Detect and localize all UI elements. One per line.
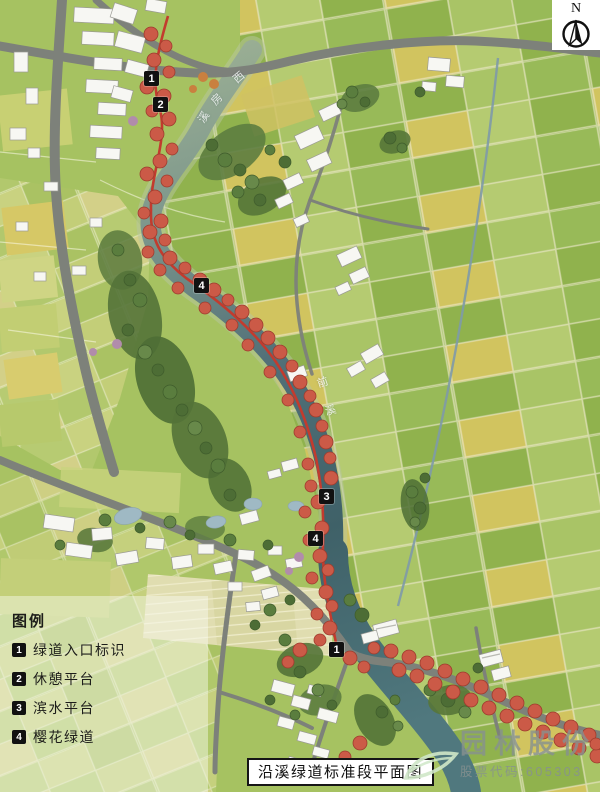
legend: 图例 1 绿道入口标识 2 休憩平台 3 滨水平台 4 樱花绿道 bbox=[12, 610, 126, 756]
map-marker-waterfront: 3 bbox=[319, 489, 334, 504]
watermark-stock-code: 股票代码:605303 bbox=[460, 761, 596, 780]
watermark-brand: 园林股份 bbox=[460, 730, 596, 758]
site-plan-map: 1 2 4 3 4 1 西 房 溪 前 溪 N 图例 1 绿道入口标识 2 休憩… bbox=[0, 0, 600, 792]
legend-num-icon: 3 bbox=[12, 701, 26, 715]
leaf-logo-icon bbox=[402, 732, 462, 784]
map-marker-cherry-upper: 4 bbox=[194, 278, 209, 293]
legend-item-label: 休憩平台 bbox=[33, 669, 95, 689]
legend-heading: 图例 bbox=[12, 610, 126, 631]
map-marker-cherry-lower: 4 bbox=[308, 531, 323, 546]
map-marker-entrance-bottom: 1 bbox=[329, 642, 344, 657]
legend-item-cherry-greenway: 4 樱花绿道 bbox=[12, 727, 126, 747]
legend-item-label: 滨水平台 bbox=[33, 698, 95, 718]
legend-item-rest-platform: 2 休憩平台 bbox=[12, 669, 126, 689]
legend-item-label: 绿道入口标识 bbox=[33, 640, 126, 660]
map-marker-rest-platform: 2 bbox=[153, 97, 168, 112]
legend-item-waterfront-platform: 3 滨水平台 bbox=[12, 698, 126, 718]
legend-num-icon: 2 bbox=[12, 672, 26, 686]
legend-num-icon: 4 bbox=[12, 730, 26, 744]
north-arrow: N bbox=[552, 0, 600, 50]
north-label: N bbox=[571, 1, 581, 16]
legend-num-icon: 1 bbox=[12, 643, 26, 657]
map-marker-entrance-top: 1 bbox=[144, 71, 159, 86]
compass-icon bbox=[559, 16, 593, 50]
legend-item-label: 樱花绿道 bbox=[33, 727, 95, 747]
watermark: 园林股份 股票代码:605303 bbox=[460, 730, 596, 780]
legend-item-entrance: 1 绿道入口标识 bbox=[12, 640, 126, 660]
